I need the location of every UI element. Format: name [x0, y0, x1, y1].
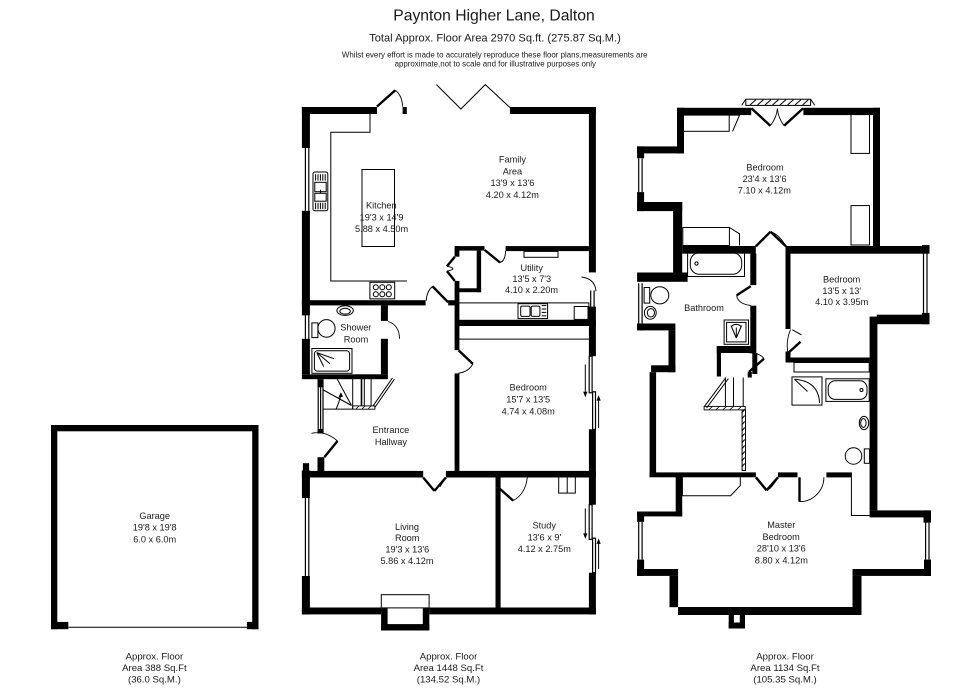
svg-text:19'3 x 13'6: 19'3 x 13'6 — [385, 545, 429, 555]
svg-text:Bedroom: Bedroom — [823, 274, 861, 284]
svg-text:5.88 x 4.50m: 5.88 x 4.50m — [355, 224, 408, 234]
svg-text:13'5 x 7'3: 13'5 x 7'3 — [512, 274, 551, 284]
svg-text:Approx. Floor: Approx. Floor — [420, 651, 478, 662]
svg-text:Kitchen: Kitchen — [366, 201, 397, 211]
svg-text:8.80 x 4.12m: 8.80 x 4.12m — [755, 556, 808, 566]
svg-text:(36.0 Sq.M.): (36.0 Sq.M.) — [128, 675, 181, 686]
svg-text:13'5 x 13': 13'5 x 13' — [822, 286, 861, 296]
svg-text:Approx. Floor: Approx. Floor — [756, 651, 814, 662]
svg-text:Family: Family — [499, 155, 526, 165]
svg-text:Room: Room — [344, 335, 369, 345]
svg-text:(105.35 Sq.M.): (105.35 Sq.M.) — [753, 675, 816, 686]
svg-text:Entrance: Entrance — [373, 425, 410, 435]
svg-text:Living: Living — [395, 522, 419, 532]
svg-text:Shower: Shower — [340, 323, 371, 333]
svg-text:Whilst every effort is made to: Whilst every effort is made to accuratel… — [342, 51, 648, 60]
svg-text:4.10 x 3.95m: 4.10 x 3.95m — [815, 297, 868, 307]
svg-text:6.0 x 6.0m: 6.0 x 6.0m — [133, 534, 176, 544]
svg-text:13'6 x 9': 13'6 x 9' — [528, 532, 562, 542]
svg-text:Bedroom: Bedroom — [746, 163, 784, 173]
svg-text:Master: Master — [767, 520, 795, 530]
svg-text:7.10 x 4.12m: 7.10 x 4.12m — [738, 186, 791, 196]
svg-text:Approx. Floor: Approx. Floor — [126, 651, 184, 662]
svg-text:Bedroom: Bedroom — [762, 532, 800, 542]
svg-text:23'4 x 13'6: 23'4 x 13'6 — [743, 174, 787, 184]
svg-text:Area 388 Sq.Ft: Area 388 Sq.Ft — [122, 663, 187, 674]
svg-text:Bedroom: Bedroom — [510, 382, 548, 392]
svg-text:Hallway: Hallway — [375, 437, 408, 447]
svg-text:Paynton Higher Lane, Dalton: Paynton Higher Lane, Dalton — [393, 7, 594, 24]
svg-text:4.12 x 2.75m: 4.12 x 2.75m — [518, 544, 571, 554]
svg-text:Total Approx. Floor Area 2970: Total Approx. Floor Area 2970 Sq.ft. (27… — [369, 33, 621, 45]
svg-text:Study: Study — [532, 521, 556, 531]
svg-text:Room: Room — [395, 533, 420, 543]
svg-text:(134.52 Sq.M.): (134.52 Sq.M.) — [417, 675, 480, 686]
svg-text:Area: Area — [503, 166, 523, 176]
svg-text:Area 1134 Sq.Ft: Area 1134 Sq.Ft — [750, 663, 819, 674]
svg-text:4.74 x 4.08m: 4.74 x 4.08m — [502, 407, 555, 417]
svg-text:19'8 x 19'8: 19'8 x 19'8 — [133, 523, 177, 533]
svg-text:4.10 x 2.20m: 4.10 x 2.20m — [505, 285, 558, 295]
svg-text:Area 1448 Sq.Ft: Area 1448 Sq.Ft — [414, 663, 484, 674]
svg-text:5.86 x 4.12m: 5.86 x 4.12m — [380, 556, 433, 566]
svg-text:4.20 x 4.12m: 4.20 x 4.12m — [486, 190, 539, 200]
svg-text:Garage: Garage — [139, 511, 170, 521]
svg-text:28'10 x 13'6: 28'10 x 13'6 — [757, 544, 806, 554]
svg-text:15'7 x 13'5: 15'7 x 13'5 — [506, 395, 550, 405]
svg-text:approximate,not to scale and f: approximate,not to scale and for illustr… — [395, 59, 596, 68]
svg-text:Utility: Utility — [520, 263, 543, 273]
svg-text:13'9 x 13'6: 13'9 x 13'6 — [490, 178, 534, 188]
svg-text:19'3 x 14'9: 19'3 x 14'9 — [360, 213, 404, 223]
svg-text:Bathroom: Bathroom — [684, 303, 724, 313]
